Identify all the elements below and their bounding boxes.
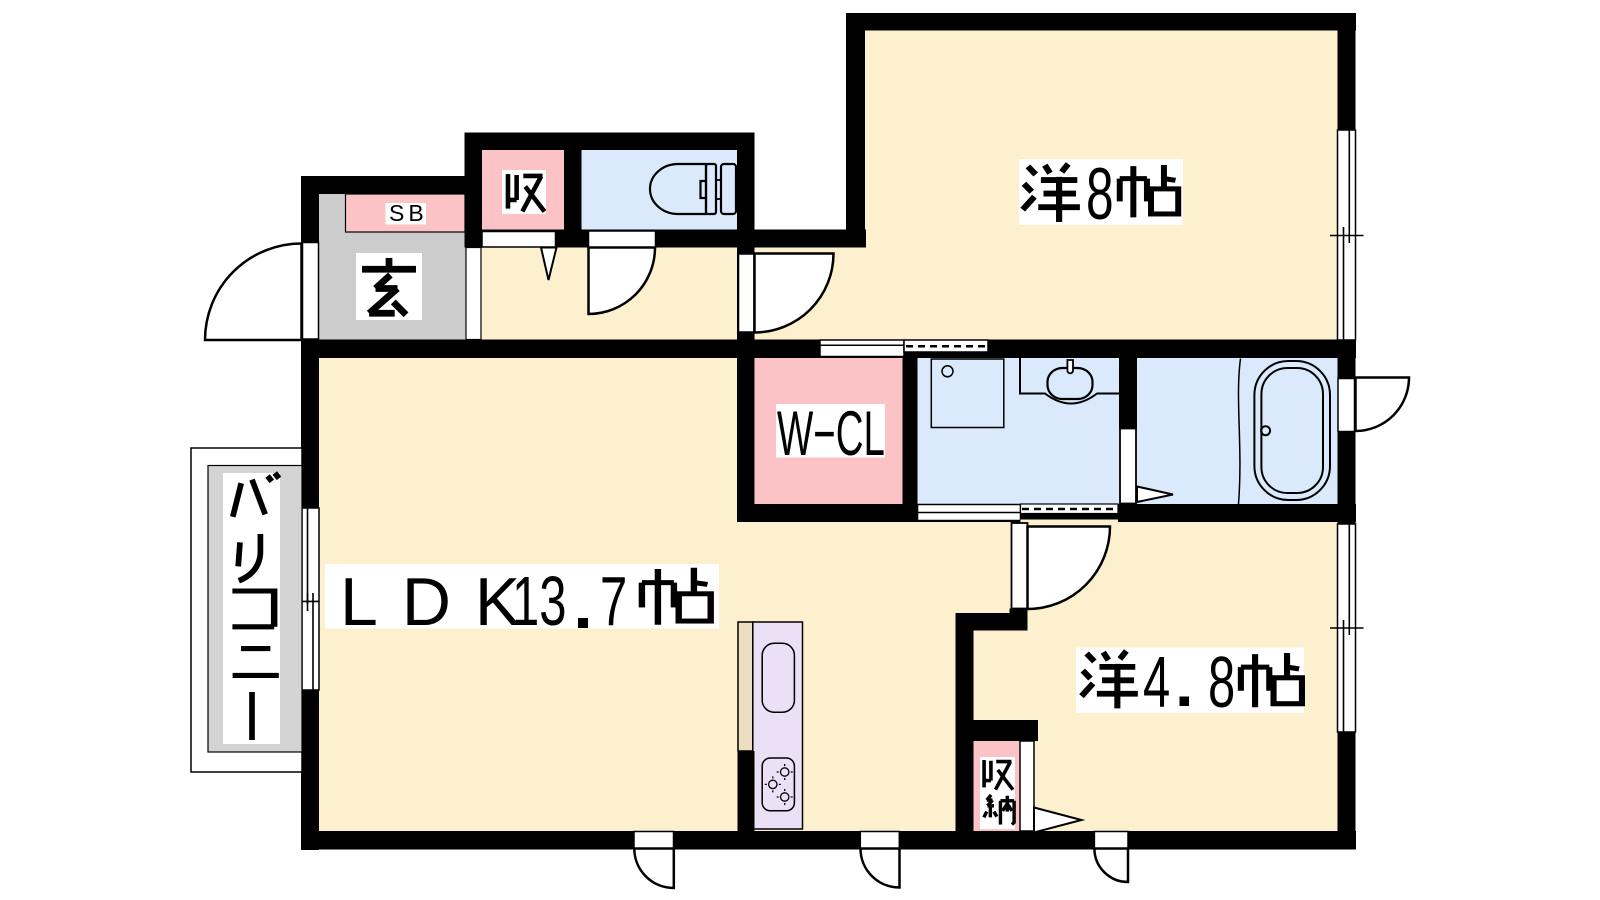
svg-text:W−CL: W−CL — [777, 399, 885, 469]
svg-text:8: 8 — [1086, 154, 1114, 236]
svg-text:SB: SB — [389, 200, 428, 226]
svg-text:13: 13 — [512, 561, 567, 640]
svg-text:8: 8 — [1208, 643, 1235, 724]
svg-text:4: 4 — [1143, 643, 1170, 724]
svg-text:7: 7 — [600, 561, 627, 640]
